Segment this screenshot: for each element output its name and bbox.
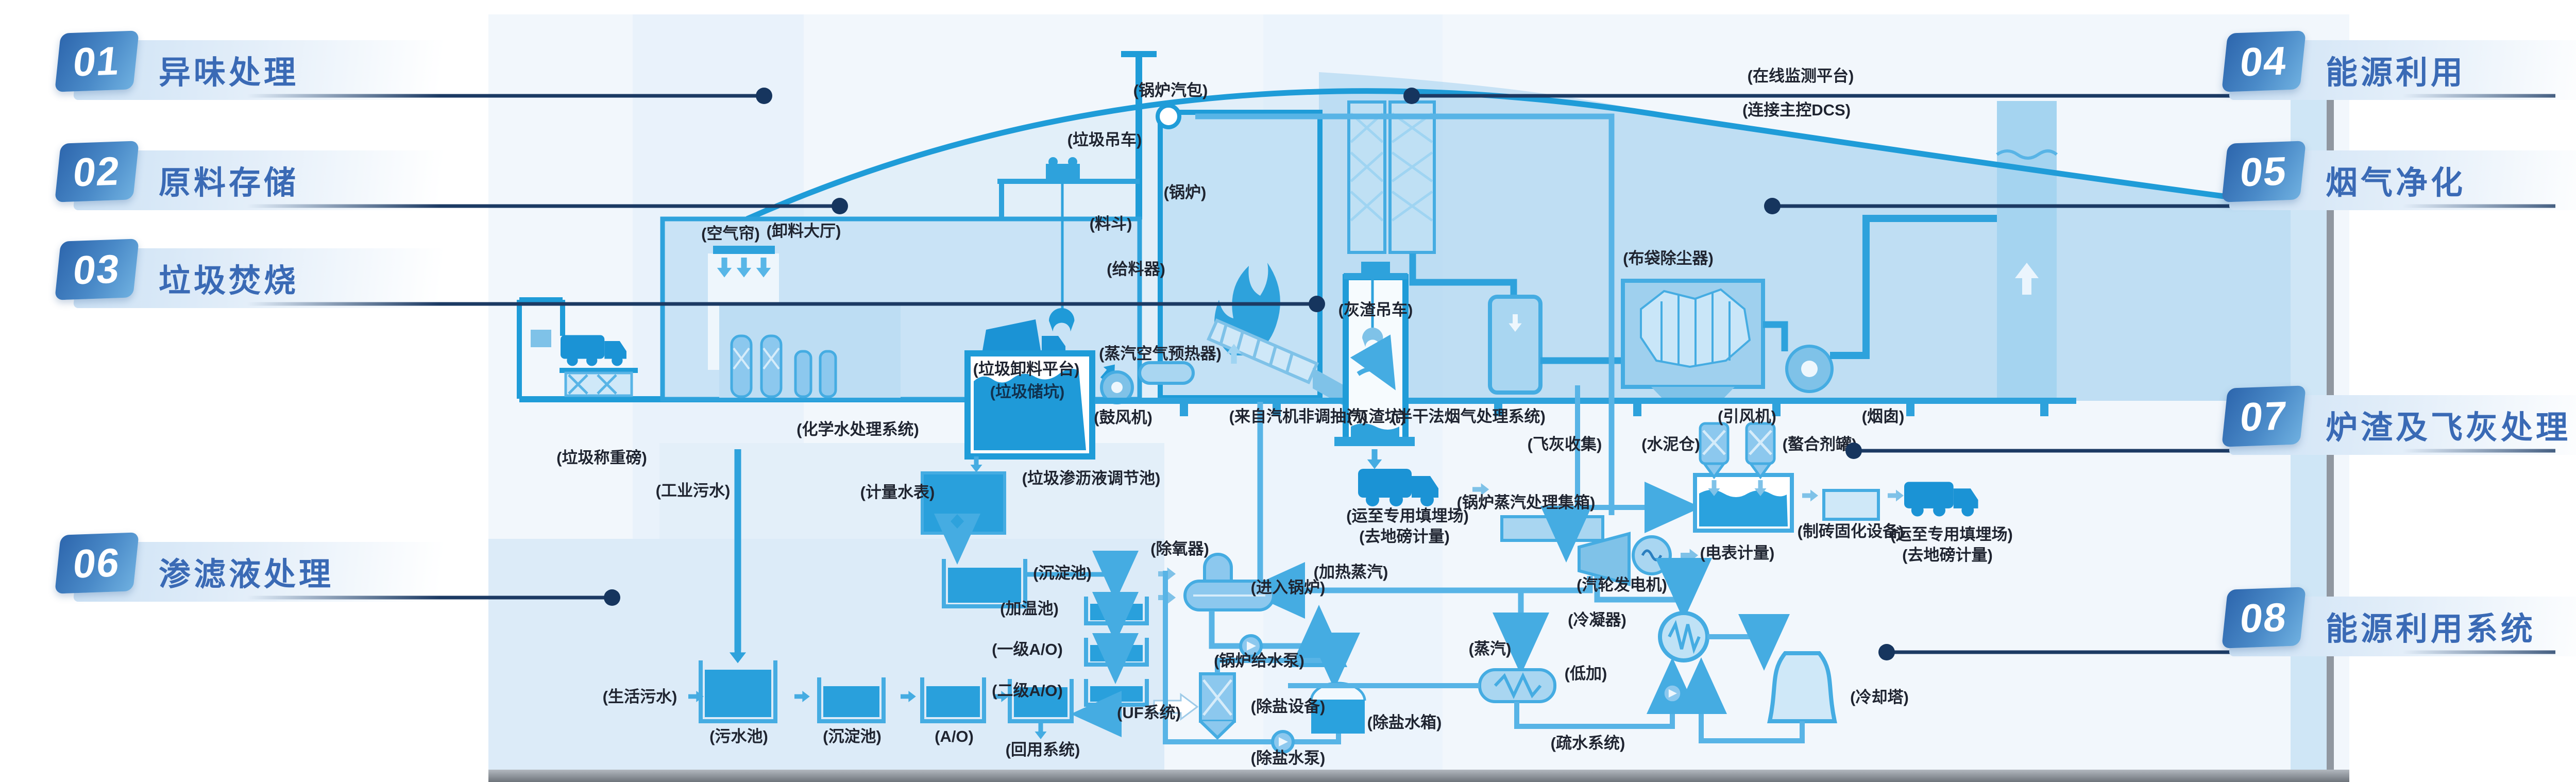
legend-number-box: 03 xyxy=(55,239,139,300)
label-sewage-pool: (污水池) xyxy=(709,727,768,745)
label-ao2: (二级A/O) xyxy=(992,682,1063,700)
legend-number-box: 02 xyxy=(55,141,139,202)
legend-title: 渗滤液处理 xyxy=(159,548,334,594)
legend-number-box: 08 xyxy=(2222,587,2306,648)
legend-number: 04 xyxy=(2238,37,2290,86)
demin-column xyxy=(1200,674,1234,738)
label-landfill1b: (去地磅计量) xyxy=(1359,528,1450,546)
bag-filter-house xyxy=(1623,281,1763,401)
legend-number: 06 xyxy=(71,539,123,587)
legend-number-box: 06 xyxy=(55,532,139,593)
label-landfill1: (运至专用填埋场) xyxy=(1346,507,1469,525)
label-turbo-generator: (汽轮发电机) xyxy=(1577,576,1667,594)
legend-title: 能源利用 xyxy=(2326,46,2466,93)
label-to-boiler: (进入锅炉) xyxy=(1251,579,1326,597)
label-boiler-drum: (锅炉汽包) xyxy=(1133,81,1208,99)
legend-title: 原料存储 xyxy=(159,157,299,203)
connector-03-dot xyxy=(1309,296,1325,312)
label-deaerator: (除氧器) xyxy=(1150,540,1209,558)
label-steam-air-preheater: (蒸汽空气预热器) xyxy=(1099,345,1222,363)
legend-title: 炉渣及飞灰处理 xyxy=(2326,401,2571,448)
label-weighbridge: (垃圾称重磅) xyxy=(556,449,647,467)
label-unloading-platform: (垃圾卸料平台) xyxy=(973,360,1080,378)
label-steam-header: (锅炉蒸汽处理集箱) xyxy=(1457,494,1596,512)
label-domestic-sewage: (生活污水) xyxy=(603,688,677,706)
legend-item-08: 08 能源利用系统 xyxy=(2225,588,2576,666)
legend-number: 01 xyxy=(71,37,123,86)
label-waste-crane: (垃圾吊车) xyxy=(1067,131,1142,149)
label-hopper: (料斗) xyxy=(1090,215,1132,233)
steam-air-preheater xyxy=(1140,363,1193,383)
leachate-pool-tank xyxy=(922,473,1005,533)
legend-number-box: 07 xyxy=(2222,385,2306,447)
label-meter: (电表计量) xyxy=(1700,544,1775,562)
label-chimney: (烟囱) xyxy=(1862,407,1905,426)
legend-number: 02 xyxy=(71,147,123,196)
legend-item-05: 05 烟气净化 xyxy=(2225,142,2576,219)
connector-08-dot xyxy=(1878,644,1895,660)
legend-number-box: 04 xyxy=(2222,30,2306,92)
air-curtain-jets xyxy=(717,258,771,277)
label-heating-pool: (加温池) xyxy=(1000,600,1059,618)
ground-bar xyxy=(488,770,2349,782)
legend-number-box: 01 xyxy=(55,30,139,92)
legend-item-06: 06 渗滤液处理 xyxy=(58,534,521,611)
legend-title: 烟气净化 xyxy=(2326,157,2466,203)
chem-water-plant xyxy=(719,305,901,398)
legend-item-04: 04 能源利用 xyxy=(2225,32,2576,109)
label-steam: (蒸汽) xyxy=(1469,640,1512,658)
label-feed-pump: (锅炉给水泵) xyxy=(1214,652,1304,670)
label-lp-heater: (低加) xyxy=(1565,665,1607,683)
label-demin-pump: (除盐水泵) xyxy=(1251,749,1326,767)
label-unloading-hall: (卸料大厅) xyxy=(767,222,841,240)
connector-05-dot xyxy=(1764,198,1781,214)
steam-header-box xyxy=(1502,517,1603,540)
cooling-tower-shape xyxy=(1770,653,1835,721)
label-ao: (A/O) xyxy=(935,727,974,745)
label-bag-filter: (布袋除尘器) xyxy=(1623,249,1714,267)
label-condenser: (冷凝器) xyxy=(1568,611,1626,629)
solidification-pit xyxy=(1695,475,1792,531)
legend-item-03: 03 垃圾焚烧 xyxy=(58,240,521,317)
connector-06-dot xyxy=(604,589,620,606)
legend-number: 07 xyxy=(2238,392,2290,440)
legend-number-box: 05 xyxy=(2222,141,2306,202)
connector-02-dot xyxy=(832,198,848,214)
label-ao1: (一级A/O) xyxy=(992,640,1063,658)
boiler-drum xyxy=(1158,106,1179,127)
label-fd-fan: (鼓风机) xyxy=(1094,409,1153,427)
label-dcs: (连接主控DCS) xyxy=(1742,101,1851,119)
label-waste-bunker: (垃圾储坑) xyxy=(990,383,1065,401)
air-curtain-header xyxy=(713,246,775,254)
label-fly-ash: (飞灰收集) xyxy=(1528,435,1602,453)
weighbridge-pit xyxy=(566,373,632,396)
label-sediment-pool2: (沉淀池) xyxy=(823,727,882,745)
label-demin-equipment: (除盐设备) xyxy=(1251,698,1326,716)
label-landfill2: (运至专用填埋场) xyxy=(1890,525,2013,543)
label-online-platform: (在线监测平台) xyxy=(1748,67,1854,85)
label-feeder: (给料器) xyxy=(1107,260,1165,278)
legend-number: 08 xyxy=(2238,593,2290,642)
connector-07-dot xyxy=(1845,443,1862,459)
label-industrial-sewage: (工业污水) xyxy=(656,482,731,500)
label-cooling-tower: (冷却塔) xyxy=(1850,688,1909,706)
label-water-meter: (计量水表) xyxy=(860,483,935,501)
legend-number: 05 xyxy=(2238,147,2290,196)
label-air-curtain: (空气帘) xyxy=(701,225,760,243)
label-brick-equipment: (制砖固化设备) xyxy=(1798,522,1904,540)
label-leachate-pool: (垃圾渗沥液调节池) xyxy=(1022,469,1161,487)
legend-title: 能源利用系统 xyxy=(2326,603,2536,649)
label-chem-water: (化学水处理系统) xyxy=(796,420,919,438)
connector-01-dot xyxy=(756,88,772,104)
label-landfill2b: (去地磅计量) xyxy=(1902,546,1993,564)
legend-number: 03 xyxy=(71,245,123,294)
legend-item-02: 02 原料存储 xyxy=(58,142,521,219)
plant-process-infographic: (锅炉汽包) (垃圾吊车) (料斗) (在线监测平台) (连接主控DCS) (空… xyxy=(0,0,2576,782)
legend-title: 异味处理 xyxy=(159,46,299,93)
label-slag-crane: (灰渣吊车) xyxy=(1338,301,1413,319)
semi-dry-scrubber xyxy=(1490,297,1540,393)
connector-04-dot xyxy=(1403,88,1420,104)
label-sediment-pool1: (沉淀池) xyxy=(1033,564,1092,582)
chimney-stack xyxy=(1997,101,2057,401)
legend-item-01: 01 异味处理 xyxy=(58,32,521,109)
process-diagram: (锅炉汽包) (垃圾吊车) (料斗) (在线监测平台) (连接主控DCS) (空… xyxy=(0,0,2576,782)
label-drain-system: (疏水系统) xyxy=(1551,734,1625,752)
legend-title: 垃圾焚烧 xyxy=(159,254,299,301)
legend-item-07: 07 炉渣及飞灰处理 xyxy=(2225,387,2576,464)
label-demin-tank: (除盐水箱) xyxy=(1367,713,1442,732)
label-cement-silo: (水泥仓) xyxy=(1641,435,1700,453)
label-boiler: (锅炉) xyxy=(1164,183,1207,201)
label-reuse: (回用系统) xyxy=(1006,741,1080,759)
label-id-fan: (引风机) xyxy=(1718,407,1776,426)
label-uf: (UF系统) xyxy=(1117,704,1181,722)
brick-making-box xyxy=(1824,490,1878,519)
label-turbine-extraction: (来自汽机非调抽汽) xyxy=(1229,407,1368,426)
label-semi-dry: (半干法烟气处理系统) xyxy=(1391,407,1546,426)
